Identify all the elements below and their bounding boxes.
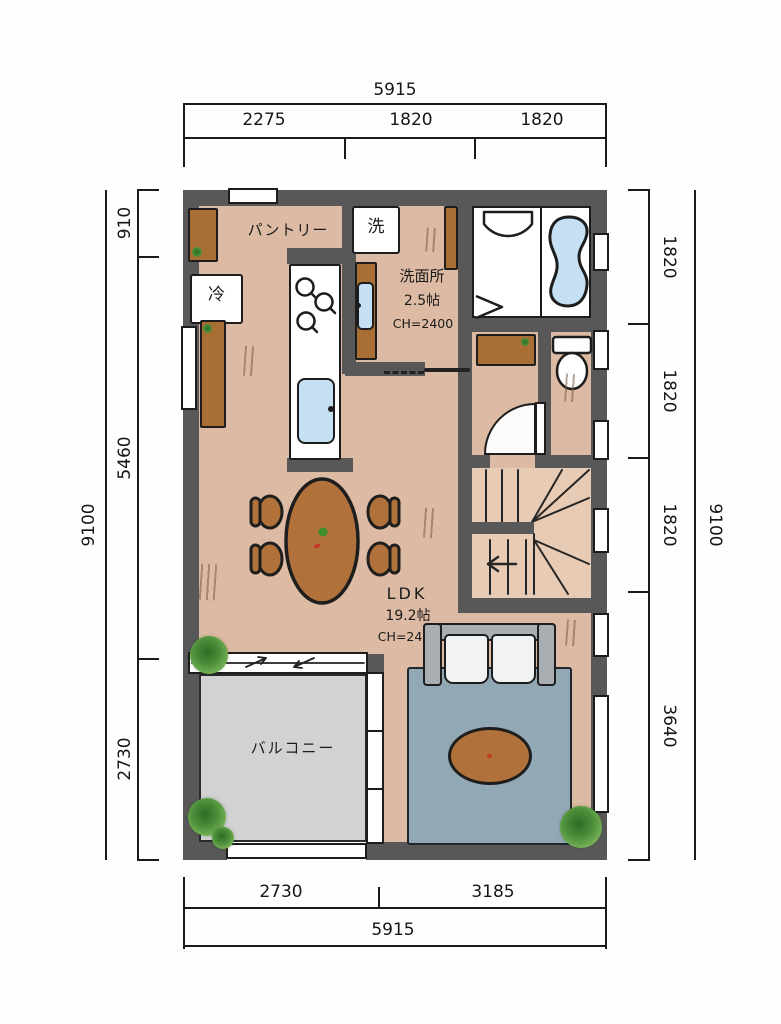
dim-left-tick-3 bbox=[137, 658, 159, 660]
sliding-door-track bbox=[384, 371, 424, 374]
stove-burners bbox=[292, 274, 338, 336]
dim-right-tick-4 bbox=[628, 591, 650, 593]
sofa-arm-left bbox=[423, 623, 442, 686]
balcony-railing bbox=[226, 843, 367, 859]
shower-basin bbox=[482, 210, 534, 242]
hall-cabinet-plant-dot bbox=[521, 338, 529, 346]
window-top-wall bbox=[228, 188, 278, 204]
dim-bottom-end-tick-right bbox=[605, 877, 607, 949]
dim-right-tick-5 bbox=[628, 859, 650, 861]
window-right-toilet bbox=[593, 330, 609, 370]
dim-top-end-tick-left bbox=[183, 103, 185, 167]
dim-bottom-end-tick-left bbox=[183, 877, 185, 949]
wall-balcony-corner-block bbox=[366, 654, 384, 674]
hall-door-swing bbox=[483, 402, 537, 456]
wall-kitchen-stub-top bbox=[287, 248, 345, 264]
floor-texture bbox=[423, 508, 435, 539]
dim-right-seg-2: 1820 bbox=[657, 351, 679, 431]
dim-right-tick-1 bbox=[628, 189, 650, 191]
dim-bottom-seg-1: 2730 bbox=[231, 882, 331, 902]
floor-texture bbox=[565, 620, 581, 647]
dim-top-seg-line bbox=[183, 137, 607, 139]
dim-right-seg-3: 1820 bbox=[657, 485, 679, 565]
dim-top-seg-3: 1820 bbox=[492, 110, 592, 130]
coffee-table-mark bbox=[487, 754, 492, 758]
window-left-wall bbox=[181, 326, 197, 410]
dim-bottom-tick-mid bbox=[378, 887, 380, 909]
stairs bbox=[472, 468, 591, 598]
balcony-label: バルコニー bbox=[238, 740, 348, 757]
dim-left-seg-line bbox=[137, 190, 139, 860]
living-plant bbox=[560, 806, 602, 848]
bathroom-folding-door bbox=[474, 294, 506, 320]
dim-left-seg-2: 5460 bbox=[115, 418, 137, 498]
dim-right-seg-line bbox=[648, 190, 650, 860]
dim-bottom-overall: 5915 bbox=[343, 920, 443, 940]
balcony-side-window-tick-2 bbox=[367, 788, 383, 790]
balcony-plant-small bbox=[212, 827, 234, 849]
washroom-name-label: 洗面所 bbox=[380, 268, 464, 285]
window-right-bathroom bbox=[593, 233, 609, 271]
window-right-living-1 bbox=[593, 613, 609, 657]
laundry-label: 洗 bbox=[352, 218, 400, 238]
floor-texture bbox=[425, 228, 441, 253]
vanity-faucet bbox=[356, 303, 361, 308]
dim-top-overall-line bbox=[183, 103, 607, 105]
dim-bottom-overall-line bbox=[183, 945, 607, 947]
dim-top-seg-1: 2275 bbox=[214, 110, 314, 130]
kitchen-faucet bbox=[328, 406, 334, 412]
dim-right-overall: 9100 bbox=[703, 485, 725, 565]
dim-top-tick-2 bbox=[474, 137, 476, 159]
floor-plan-canvas: 5915 2275 1820 1820 2730 3185 5915 9100 … bbox=[0, 0, 781, 1024]
ldk-plant bbox=[190, 636, 228, 674]
ldk-name-label: LDK bbox=[372, 585, 442, 603]
washroom-size-label: 2.5帖 bbox=[380, 293, 464, 309]
pantry-label: パントリー bbox=[228, 222, 348, 239]
dim-left-tick-2 bbox=[137, 256, 159, 258]
dim-right-overall-line bbox=[694, 190, 696, 860]
sofa-arm-right bbox=[537, 623, 556, 686]
bathroom-divider-line bbox=[540, 208, 542, 316]
wall-hall-bottom-left bbox=[458, 455, 490, 468]
dim-right-tick-3 bbox=[628, 457, 650, 459]
washroom-tall-cabinet bbox=[444, 206, 458, 270]
floor-texture bbox=[243, 346, 257, 377]
dim-bottom-seg-2: 3185 bbox=[443, 882, 543, 902]
floor-texture bbox=[199, 563, 217, 600]
wall-stairs-left bbox=[458, 468, 472, 598]
floor-texture bbox=[564, 374, 580, 403]
fridge-label: 冷 bbox=[190, 286, 243, 306]
wall-stairs-bottom bbox=[458, 598, 598, 613]
dim-bottom-seg-line bbox=[183, 907, 607, 909]
wall-bathroom-bottom bbox=[472, 318, 591, 332]
hall-door-leaf bbox=[535, 402, 546, 455]
kitchen-cabinet-plant-dot bbox=[203, 324, 212, 333]
balcony-side-window bbox=[366, 672, 384, 844]
dim-top-overall: 5915 bbox=[345, 80, 445, 100]
kitchen-wall-cabinet bbox=[200, 320, 226, 428]
washroom-ch-label: CH=2400 bbox=[378, 317, 468, 331]
dim-left-tick-4 bbox=[137, 859, 159, 861]
window-right-hall bbox=[593, 420, 609, 460]
bathtub bbox=[546, 214, 592, 310]
ldk-size-label: 19.2帖 bbox=[366, 608, 450, 624]
dim-left-overall-line bbox=[105, 190, 107, 860]
dim-left-seg-3: 2730 bbox=[115, 719, 137, 799]
sliding-door-panel bbox=[424, 368, 470, 372]
dim-right-seg-1: 1820 bbox=[657, 217, 679, 297]
pantry-plant-dot bbox=[192, 247, 202, 257]
dim-top-seg-2: 1820 bbox=[361, 110, 461, 130]
window-right-living-2 bbox=[593, 695, 609, 813]
window-right-stairs bbox=[593, 508, 609, 553]
dim-right-seg-4: 3640 bbox=[657, 686, 679, 766]
sofa-cushion-right bbox=[491, 634, 536, 684]
dim-right-tick-2 bbox=[628, 323, 650, 325]
dim-top-end-tick-right bbox=[605, 103, 607, 167]
dim-left-overall: 9100 bbox=[79, 485, 101, 565]
balcony-side-window-tick-1 bbox=[367, 730, 383, 732]
dim-left-tick-1 bbox=[137, 189, 159, 191]
sofa-cushion-left bbox=[444, 634, 489, 684]
dim-top-tick-1 bbox=[344, 137, 346, 159]
dim-left-seg-1: 910 bbox=[115, 183, 137, 263]
